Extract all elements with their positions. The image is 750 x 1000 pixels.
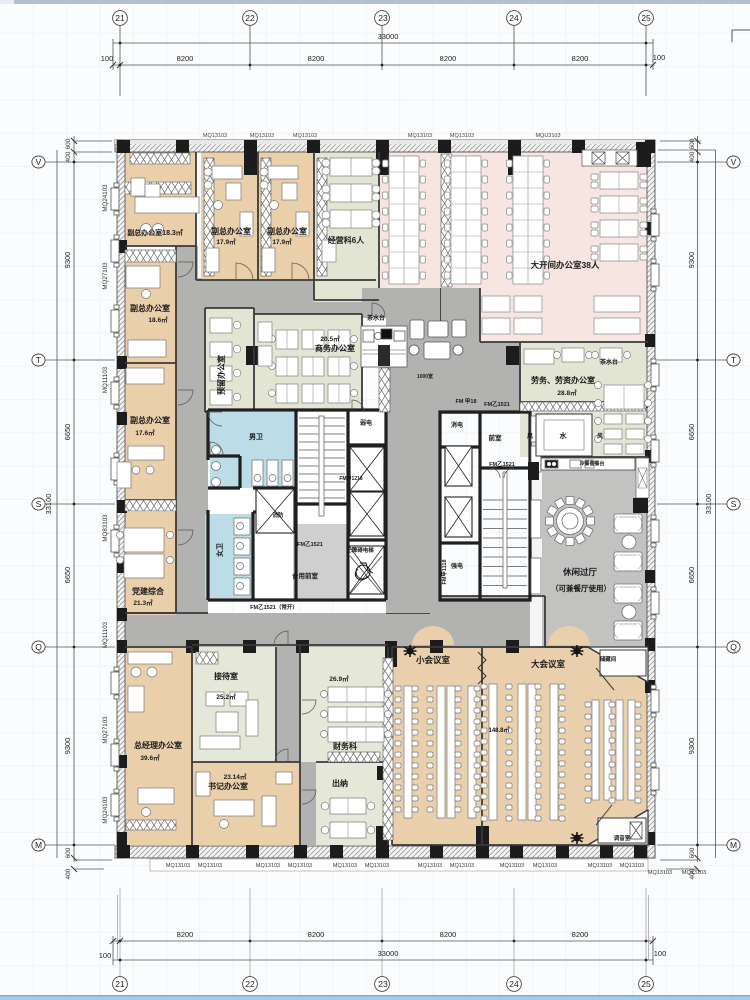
svg-text:MQ13103: MQ13103 <box>365 863 389 869</box>
svg-text:MQ24103: MQ24103 <box>102 796 109 824</box>
svg-text:400: 400 <box>689 151 696 162</box>
svg-text:33100: 33100 <box>704 494 713 515</box>
svg-text:T: T <box>731 355 736 365</box>
svg-text:总经理办公室: 总经理办公室 <box>134 740 182 750</box>
svg-text:20.5㎡: 20.5㎡ <box>320 334 340 343</box>
svg-text:MQ13103: MQ13103 <box>293 133 317 139</box>
svg-text:消电: 消电 <box>451 421 463 429</box>
svg-text:400: 400 <box>65 151 72 162</box>
svg-text:17.6㎡: 17.6㎡ <box>135 428 155 437</box>
svg-text:预留办公室: 预留办公室 <box>216 355 226 395</box>
svg-text:8200: 8200 <box>572 930 589 939</box>
svg-text:21: 21 <box>115 979 125 989</box>
svg-text:MQU3103: MQU3103 <box>535 133 560 139</box>
svg-text:茶水台: 茶水台 <box>366 314 385 322</box>
svg-text:商务办公室: 商务办公室 <box>315 343 355 353</box>
svg-text:17.9㎡: 17.9㎡ <box>216 237 236 246</box>
svg-text:MQ13103: MQ13103 <box>198 863 222 869</box>
svg-text:22: 22 <box>245 979 255 989</box>
svg-text:600: 600 <box>65 847 72 858</box>
svg-text:24: 24 <box>509 979 519 989</box>
svg-text:MQ13103: MQ13103 <box>418 863 442 869</box>
svg-text:MQ13103: MQ13103 <box>500 863 524 869</box>
svg-text:副总办公室18.3㎡: 副总办公室18.3㎡ <box>127 228 183 237</box>
svg-text:23: 23 <box>378 979 388 989</box>
svg-text:23.14㎡: 23.14㎡ <box>224 772 247 781</box>
svg-text:FM乙1521: FM乙1521 <box>484 401 510 408</box>
svg-text:6650: 6650 <box>63 424 72 441</box>
svg-text:8200: 8200 <box>177 54 194 63</box>
svg-text:V: V <box>36 157 42 167</box>
svg-text:强电: 强电 <box>451 562 463 570</box>
svg-text:小会议室: 小会议室 <box>415 655 451 665</box>
svg-text:书记办公室: 书记办公室 <box>208 781 248 791</box>
svg-text:接待室: 接待室 <box>214 671 238 681</box>
svg-text:600: 600 <box>65 138 72 149</box>
svg-text:MQ13103: MQ13103 <box>408 133 432 139</box>
svg-text:副总办公室: 副总办公室 <box>130 303 170 313</box>
svg-text:FM甲1218: FM甲1218 <box>339 475 363 482</box>
svg-text:女卫: 女卫 <box>215 543 224 557</box>
svg-text:8200: 8200 <box>572 54 589 63</box>
svg-text:148.8㎡: 148.8㎡ <box>488 726 509 734</box>
svg-text:400: 400 <box>65 868 72 879</box>
svg-text:弱电: 弱电 <box>360 419 372 427</box>
svg-text:M: M <box>35 840 42 850</box>
svg-text:6650: 6650 <box>687 567 696 584</box>
svg-text:风: 风 <box>597 432 603 440</box>
svg-text:MQ13103: MQ13103 <box>682 870 706 876</box>
svg-text:21: 21 <box>115 13 125 23</box>
svg-text:1000宽: 1000宽 <box>417 373 433 380</box>
svg-text:风: 风 <box>527 432 533 440</box>
svg-text:（可兼餐厅使用）: （可兼餐厅使用） <box>551 583 611 593</box>
svg-text:副总办公室: 副总办公室 <box>211 226 251 236</box>
svg-text:冷餐备餐台: 冷餐备餐台 <box>579 460 604 467</box>
svg-text:MQ83103: MQ83103 <box>102 514 109 542</box>
svg-text:前室: 前室 <box>489 433 503 442</box>
svg-text:休闲过厅: 休闲过厅 <box>562 567 598 577</box>
svg-text:33000: 33000 <box>378 949 399 958</box>
svg-text:MQ13103: MQ13103 <box>333 863 357 869</box>
svg-text:FM甲1118: FM甲1118 <box>440 559 448 584</box>
svg-text:S: S <box>36 499 42 509</box>
svg-text:储藏间: 储藏间 <box>599 655 617 663</box>
svg-text:25.2㎡: 25.2㎡ <box>216 692 236 701</box>
svg-text:8200: 8200 <box>308 54 325 63</box>
svg-text:33100: 33100 <box>44 494 53 515</box>
svg-text:副总办公室: 副总办公室 <box>130 415 170 425</box>
svg-text:大会议室: 大会议室 <box>531 659 566 669</box>
svg-text:18.6㎡: 18.6㎡ <box>148 315 168 324</box>
svg-text:Q: Q <box>730 642 737 652</box>
svg-text:9300: 9300 <box>63 738 72 755</box>
svg-text:MQ13103: MQ13103 <box>250 133 274 139</box>
svg-text:Q: Q <box>35 642 42 652</box>
svg-text:消防: 消防 <box>272 511 284 519</box>
svg-text:FM乙1521: FM乙1521 <box>489 461 515 468</box>
svg-text:FM乙1521: FM乙1521 <box>297 541 323 548</box>
svg-text:党建综合: 党建综合 <box>132 586 165 596</box>
svg-text:MQ13103: MQ13103 <box>450 863 474 869</box>
svg-text:FM乙1521（常开）: FM乙1521（常开） <box>250 603 298 611</box>
svg-text:100: 100 <box>99 951 112 960</box>
svg-text:出纳: 出纳 <box>332 778 348 788</box>
svg-text:26.9㎡: 26.9㎡ <box>329 674 349 683</box>
svg-text:合用前室: 合用前室 <box>291 571 319 580</box>
svg-text:MQ13103: MQ13103 <box>203 133 227 139</box>
svg-text:MQ13103: MQ13103 <box>256 863 280 869</box>
svg-text:M: M <box>730 840 737 850</box>
svg-text:MQ13103: MQ13103 <box>648 870 672 876</box>
svg-text:水: 水 <box>560 431 568 440</box>
svg-text:21.3㎡: 21.3㎡ <box>133 598 153 607</box>
svg-text:MQ13103: MQ13103 <box>620 863 644 869</box>
svg-text:T: T <box>36 355 41 365</box>
svg-text:MQ13103: MQ13103 <box>588 863 612 869</box>
svg-text:MQ13103: MQ13103 <box>166 863 190 869</box>
svg-text:V: V <box>731 157 737 167</box>
svg-text:经营科6人: 经营科6人 <box>328 235 365 245</box>
svg-text:17.9㎡: 17.9㎡ <box>272 237 292 246</box>
svg-text:劳务、劳资办公室: 劳务、劳资办公室 <box>531 375 595 385</box>
svg-text:MQ24103: MQ24103 <box>102 184 109 212</box>
svg-text:6650: 6650 <box>687 424 696 441</box>
svg-text:39.6㎡: 39.6㎡ <box>140 753 160 762</box>
svg-text:8200: 8200 <box>440 54 457 63</box>
svg-text:MQ11103: MQ11103 <box>102 366 109 393</box>
svg-text:男卫: 男卫 <box>249 433 263 441</box>
svg-text:100: 100 <box>654 949 667 958</box>
svg-text:无障碍电梯: 无障碍电梯 <box>345 546 374 554</box>
svg-text:8200: 8200 <box>308 930 325 939</box>
svg-text:33000: 33000 <box>378 32 399 41</box>
svg-text:100: 100 <box>101 54 114 63</box>
svg-text:23: 23 <box>378 13 388 23</box>
svg-text:9300: 9300 <box>687 738 696 755</box>
svg-text:600: 600 <box>689 138 696 149</box>
svg-text:22: 22 <box>245 13 255 23</box>
svg-text:MQ27103: MQ27103 <box>102 262 109 290</box>
svg-text:25: 25 <box>641 979 651 989</box>
svg-text:调音室: 调音室 <box>614 834 631 842</box>
svg-text:MQ13103: MQ13103 <box>288 863 312 869</box>
svg-text:MQ27103: MQ27103 <box>102 716 109 744</box>
svg-text:28.8㎡: 28.8㎡ <box>557 388 577 397</box>
svg-text:副总办公室: 副总办公室 <box>267 226 307 236</box>
svg-text:25: 25 <box>641 13 651 23</box>
svg-text:MQ13103: MQ13103 <box>450 133 474 139</box>
svg-text:8200: 8200 <box>177 930 194 939</box>
svg-text:S: S <box>731 499 737 509</box>
svg-text:9300: 9300 <box>63 252 72 269</box>
svg-text:9300: 9300 <box>687 252 696 269</box>
svg-text:600: 600 <box>689 847 696 858</box>
svg-text:FM 甲18: FM 甲18 <box>455 397 476 405</box>
svg-text:8200: 8200 <box>440 930 457 939</box>
svg-text:MQ11103: MQ11103 <box>102 621 109 648</box>
svg-text:大开间办公室38人: 大开间办公室38人 <box>531 260 600 270</box>
svg-text:茶水台: 茶水台 <box>599 358 618 366</box>
svg-text:24: 24 <box>509 13 519 23</box>
svg-text:MQ13103: MQ13103 <box>533 863 557 869</box>
svg-text:100: 100 <box>653 53 666 62</box>
svg-text:6650: 6650 <box>63 567 72 584</box>
svg-text:财务科: 财务科 <box>332 741 357 751</box>
